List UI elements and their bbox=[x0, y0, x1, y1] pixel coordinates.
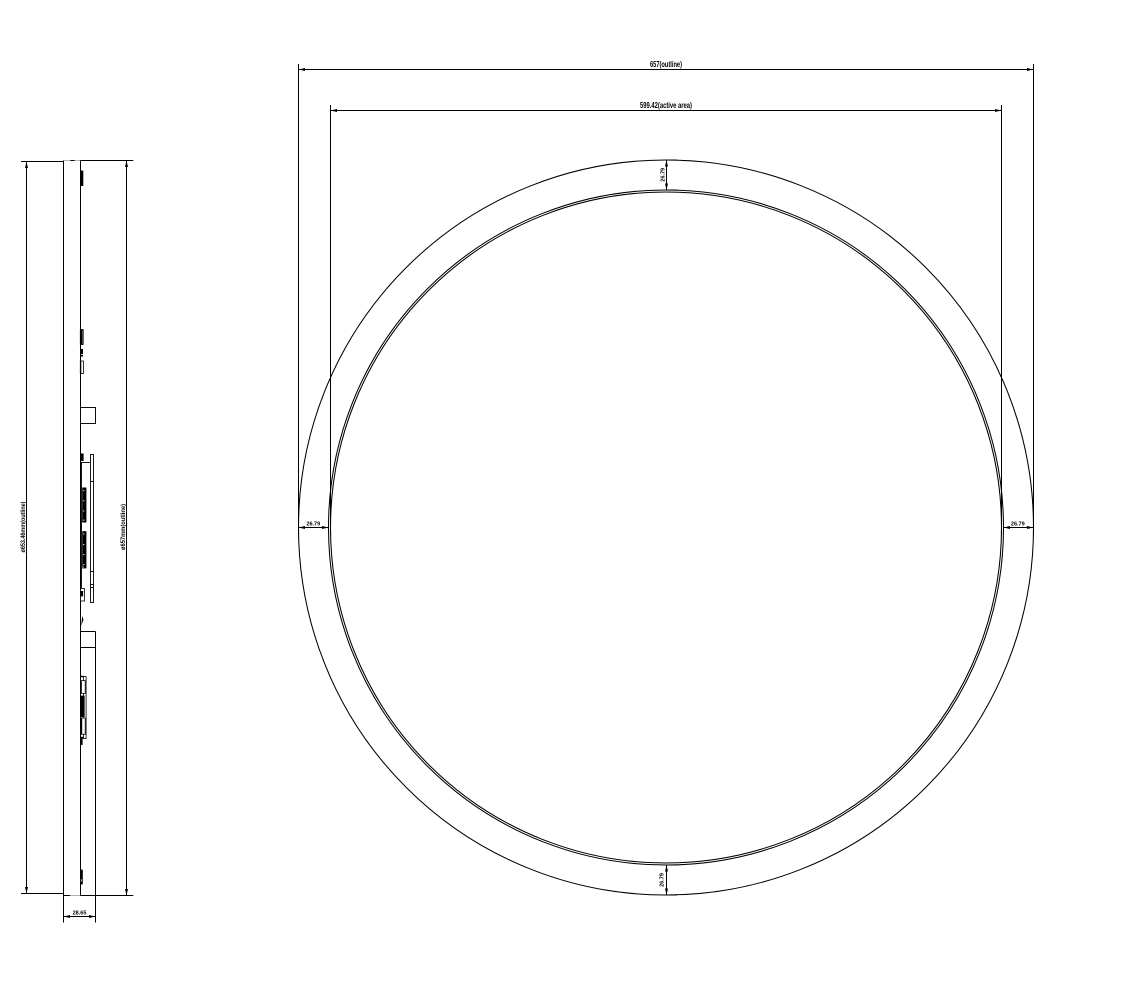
svg-text:26.79: 26.79 bbox=[660, 873, 666, 887]
svg-text:ø653.46mm(outline): ø653.46mm(outline) bbox=[21, 502, 27, 553]
svg-text:28.65: 28.65 bbox=[73, 911, 87, 917]
svg-text:26.79: 26.79 bbox=[306, 522, 320, 528]
svg-text:26.79: 26.79 bbox=[660, 168, 666, 182]
svg-text:599.42(active area): 599.42(active area) bbox=[640, 101, 692, 110]
svg-text:26.79: 26.79 bbox=[1011, 522, 1025, 528]
svg-text:ø657mm(outline): ø657mm(outline) bbox=[121, 504, 127, 550]
svg-text:657(outline): 657(outline) bbox=[650, 60, 682, 69]
